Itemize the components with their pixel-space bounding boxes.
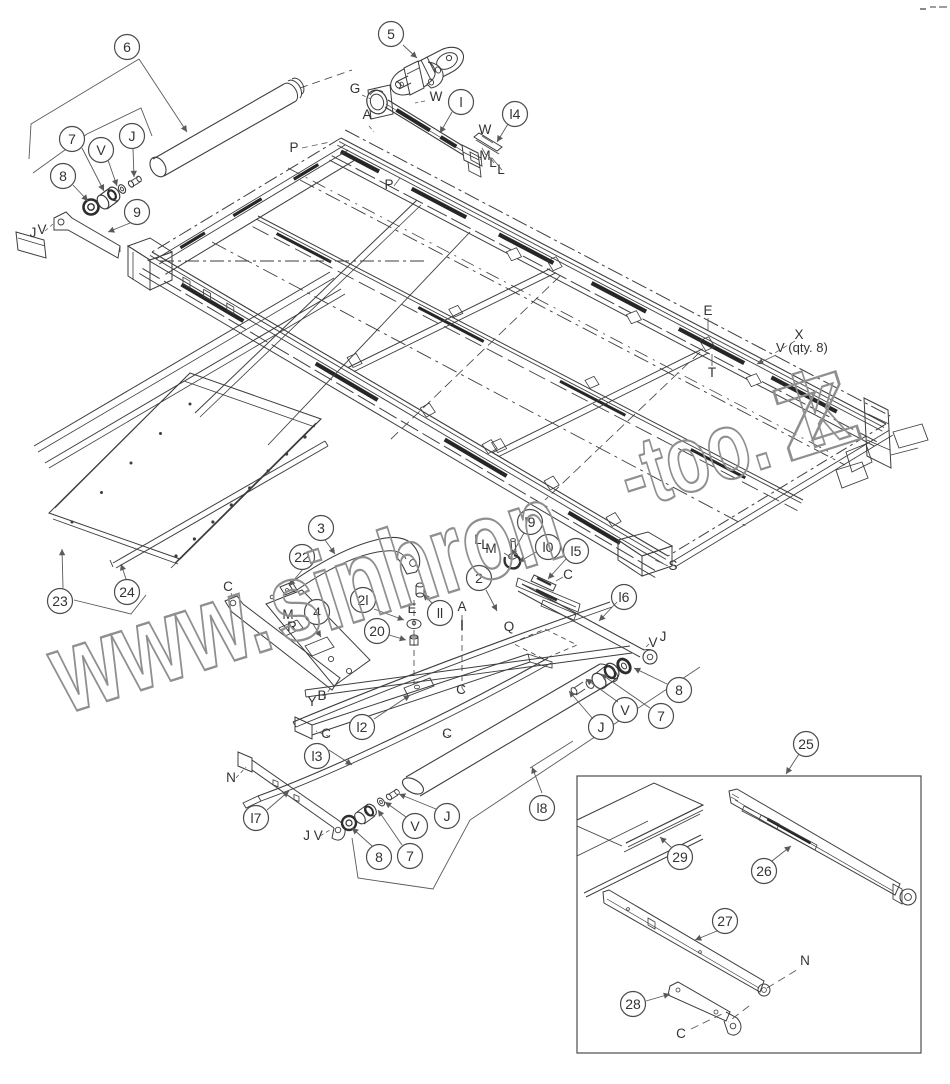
- svg-text:V: V: [648, 635, 657, 650]
- svg-text:27: 27: [717, 913, 733, 929]
- svg-text:W: W: [430, 89, 443, 104]
- svg-text:J: J: [30, 225, 37, 240]
- svg-text:l2: l2: [357, 719, 368, 735]
- svg-text:J: J: [444, 808, 451, 824]
- svg-text:J: J: [598, 719, 605, 735]
- svg-text:8: 8: [59, 168, 67, 184]
- svg-text:l7: l7: [251, 810, 262, 826]
- svg-text:P: P: [289, 140, 298, 155]
- svg-text:28: 28: [625, 996, 641, 1012]
- svg-text:8: 8: [375, 849, 383, 865]
- svg-text:C: C: [676, 1026, 686, 1041]
- svg-text:l6: l6: [619, 589, 630, 605]
- svg-text:P: P: [384, 177, 393, 192]
- svg-text:V: V: [96, 142, 106, 158]
- svg-text:V: V: [37, 222, 46, 237]
- svg-text:7: 7: [406, 848, 414, 864]
- svg-text:V: V: [410, 818, 420, 834]
- svg-text:C: C: [442, 726, 452, 741]
- svg-text:S: S: [668, 558, 677, 573]
- svg-text:5: 5: [387, 26, 395, 42]
- svg-text:J: J: [129, 128, 136, 144]
- svg-text:l4: l4: [510, 106, 521, 122]
- svg-text:A: A: [362, 107, 371, 122]
- svg-text:7: 7: [657, 708, 665, 724]
- svg-text:l: l: [459, 94, 462, 110]
- svg-text:E: E: [703, 303, 712, 318]
- svg-text:8: 8: [675, 682, 683, 698]
- svg-text:l3: l3: [312, 748, 323, 764]
- svg-text:W: W: [479, 122, 492, 137]
- svg-text:N: N: [800, 953, 810, 968]
- svg-text:C: C: [456, 682, 466, 697]
- svg-text:Y: Y: [307, 694, 316, 709]
- svg-text:l5: l5: [571, 543, 582, 559]
- svg-text:J: J: [660, 629, 667, 644]
- svg-text:7: 7: [68, 131, 76, 147]
- svg-text:25: 25: [798, 736, 814, 752]
- svg-text:N: N: [226, 770, 236, 785]
- svg-text:T: T: [708, 365, 716, 380]
- svg-text:l8: l8: [537, 800, 548, 816]
- svg-text:6: 6: [123, 39, 131, 55]
- svg-text:Q: Q: [504, 619, 515, 634]
- svg-text:V: V: [620, 702, 630, 718]
- svg-text:29: 29: [672, 849, 688, 865]
- svg-text:26: 26: [756, 863, 772, 879]
- svg-text:G: G: [350, 81, 361, 96]
- svg-text:J V: J V: [303, 828, 323, 843]
- svg-text:9: 9: [133, 204, 141, 220]
